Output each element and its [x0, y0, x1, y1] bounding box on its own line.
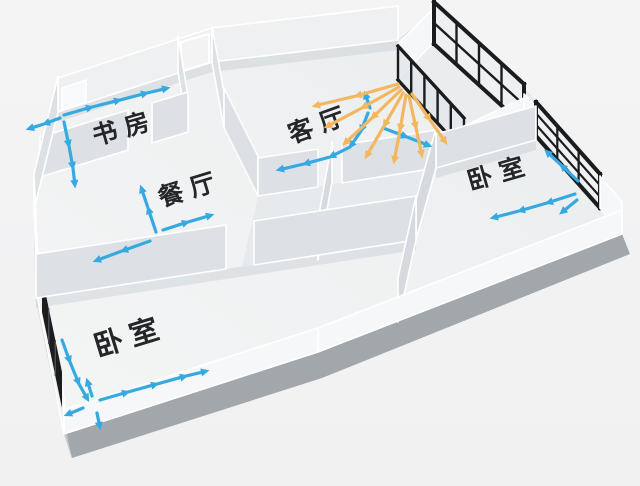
floor-plan-canvas: 书房餐厅客厅卧室卧室	[0, 0, 640, 486]
floor-plan-diagram: 书房餐厅客厅卧室卧室	[0, 0, 640, 486]
